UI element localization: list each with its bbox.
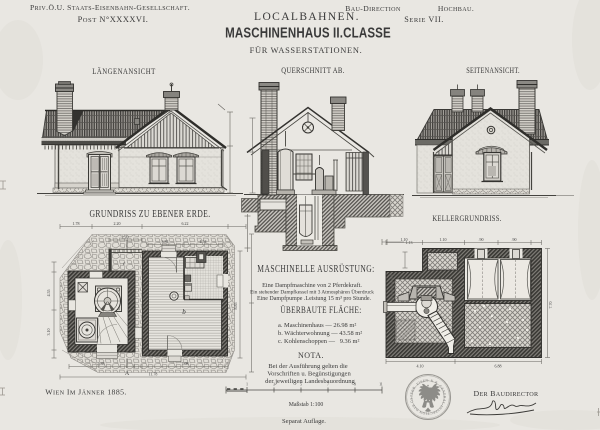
svg-text:SEITENANSICHT.: SEITENANSICHT. [466,66,520,75]
svg-text:MASCHINELLE AUSRÜSTUNG:: MASCHINELLE AUSRÜSTUNG: [257,263,374,274]
svg-text:11.78: 11.78 [149,372,158,377]
svg-text:7: 7 [327,383,329,387]
svg-text:1.10: 1.10 [440,237,447,242]
svg-text:1.10: 1.10 [401,237,408,242]
svg-text:1.78: 1.78 [73,221,80,226]
svg-text:8.85: 8.85 [233,303,238,310]
svg-text:Eine Dampfmaschine von 2 Pferd: Eine Dampfmaschine von 2 Pferdekraft. [262,282,362,289]
svg-text:1.54: 1.54 [200,239,207,244]
svg-text:11: 11 [379,383,383,387]
svg-text:b. Wächterwohnung — 43.58 m²: b. Wächterwohnung — 43.58 m² [278,330,362,337]
svg-text:Ein stehender Dampfkessel mit: Ein stehender Dampfkessel mit 3 Atmosphä… [250,289,374,296]
svg-text:4.55: 4.55 [46,290,51,297]
svg-text:QUERSCHNITT AB.: QUERSCHNITT AB. [281,65,344,75]
svg-text:Vorschriften u. Begünstigungen: Vorschriften u. Begünstigungen [267,371,351,378]
svg-text:a. Maschinenhaus — 26.98 m²: a. Maschinenhaus — 26.98 m² [278,322,356,329]
svg-text:4.10: 4.10 [417,364,424,369]
svg-text:MASCHINENHAUS II.CLASSE: MASCHINENHAUS II.CLASSE [225,24,391,41]
svg-text:Bei der Ausführung gelten die: Bei der Ausführung gelten die [268,363,348,370]
svg-text:Maßstab 1:100: Maßstab 1:100 [289,401,324,408]
svg-text:3: 3 [273,383,275,387]
svg-text:.90: .90 [512,237,517,242]
svg-text:SERIE VII.: SERIE VII. [404,15,444,24]
svg-text:DER BAUDIRECTOR: DER BAUDIRECTOR [474,389,540,398]
svg-text:FÜR WASSERSTATIONEN.: FÜR WASSERSTATIONEN. [250,46,363,55]
svg-text:5: 5 [300,383,302,387]
svg-text:KELLERGRUNDRISS.: KELLERGRUNDRISS. [432,213,501,223]
svg-text:2.20: 2.20 [122,235,129,240]
svg-text:ÜBERBAUTE FLÄCHE:: ÜBERBAUTE FLÄCHE: [280,304,361,315]
svg-text:Separat Auflage.: Separat Auflage. [282,418,326,425]
svg-text:.90: .90 [479,237,484,242]
svg-text:der jeweiligen Landesbauordnun: der jeweiligen Landesbauordnung [265,378,355,385]
svg-text:7.08: 7.08 [182,361,189,366]
svg-text:5.35: 5.35 [98,361,105,366]
svg-text:9: 9 [354,383,356,387]
svg-text:POST N°XXXXVI.: POST N°XXXXVI. [78,15,149,24]
svg-text:c. Kohlenschoppen — 9.36 m²: c. Kohlenschoppen — 9.36 m² [278,338,360,345]
svg-text:3.10: 3.10 [46,329,51,336]
svg-text:2.20: 2.20 [114,221,121,226]
svg-text:WIEN IM JÄNNER 1885.: WIEN IM JÄNNER 1885. [45,388,127,397]
svg-text:7.70: 7.70 [548,302,553,309]
svg-text:6.88: 6.88 [495,364,502,369]
svg-text:b: b [182,308,186,316]
svg-text:NOTA.: NOTA. [298,351,324,360]
svg-text:LÄNGENANSICHT: LÄNGENANSICHT [92,66,155,76]
svg-text:3.84: 3.84 [162,239,169,244]
svg-text:1: 1 [246,383,248,387]
svg-text:LOCALBAHNEN.: LOCALBAHNEN. [254,11,360,23]
svg-text:A: A [125,371,130,377]
svg-text:6.22: 6.22 [182,221,189,226]
svg-text:GRUNDRISS ZU EBENER ERDE.: GRUNDRISS ZU EBENER ERDE. [89,208,210,219]
svg-text:Eine Dampfpumpe .Leistung 15 m: Eine Dampfpumpe .Leistung 15 m³ pro Stun… [257,295,372,302]
